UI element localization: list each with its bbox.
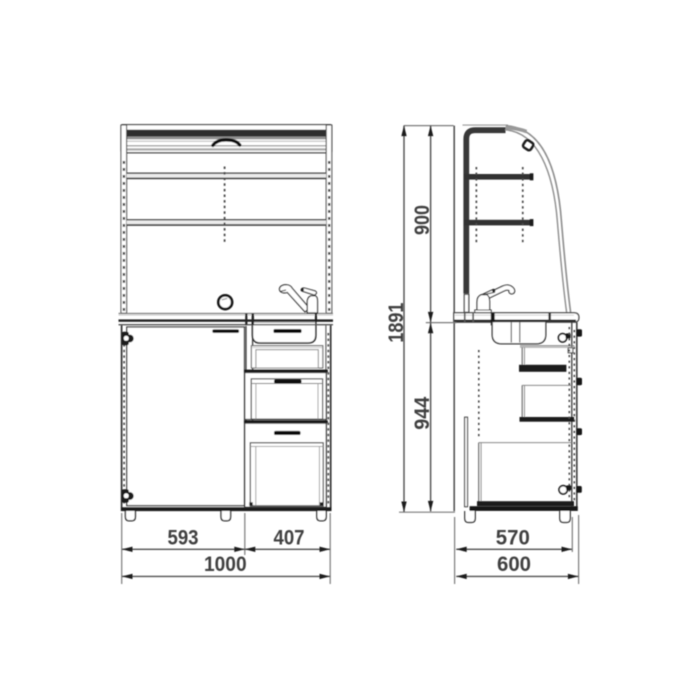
svg-text:600: 600 <box>497 552 531 576</box>
svg-text:900: 900 <box>410 205 434 235</box>
svg-text:407: 407 <box>274 526 305 550</box>
svg-text:593: 593 <box>168 526 199 550</box>
svg-text:1891: 1891 <box>384 303 408 343</box>
svg-text:570: 570 <box>496 526 530 550</box>
svg-text:1000: 1000 <box>204 552 247 576</box>
svg-text:944: 944 <box>410 397 434 430</box>
